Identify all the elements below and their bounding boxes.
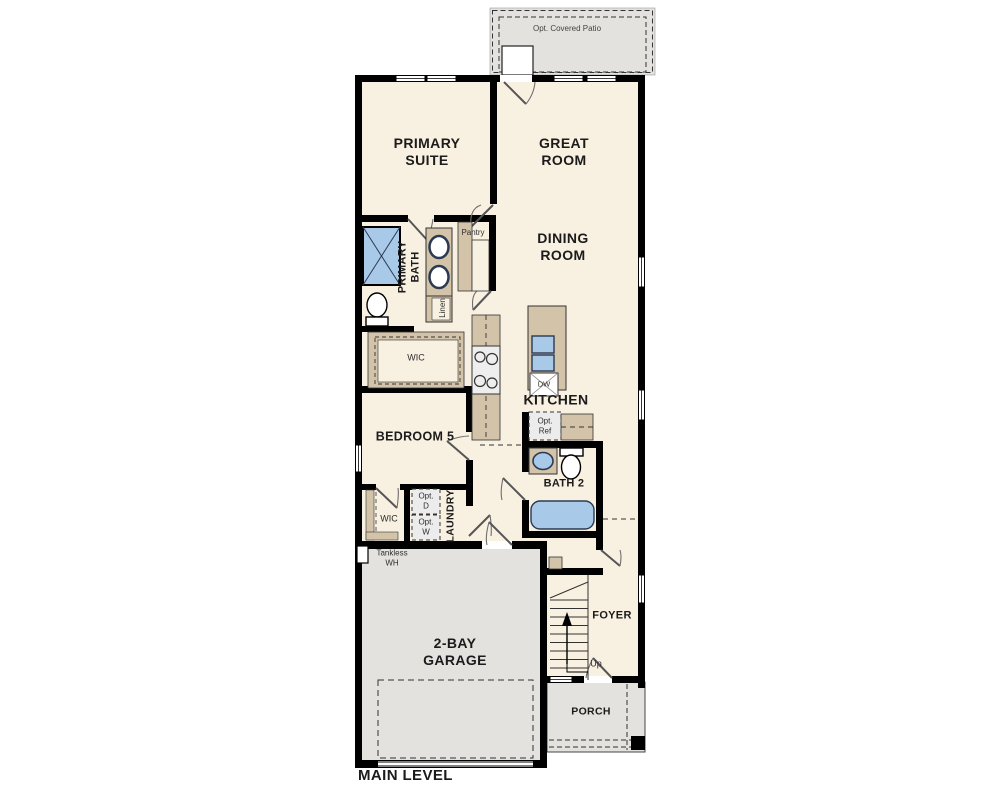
- porch-column: [631, 736, 645, 750]
- porch-label: PORCH: [571, 706, 610, 719]
- great-room-label: GREAT ROOM: [539, 135, 589, 169]
- wic-secondary-label: WIC: [380, 514, 398, 525]
- patio-notch: [502, 46, 533, 75]
- patio-label: Opt. Covered Patio: [533, 24, 601, 34]
- plan-title: MAIN LEVEL: [358, 767, 453, 785]
- wic-primary-label: WIC: [407, 353, 425, 364]
- bathtub-icon: [531, 501, 594, 529]
- opt-washer-label: Opt. W: [418, 517, 433, 537]
- tankless-wh-label: Tankless WH: [376, 548, 407, 568]
- linen-label: Linen: [438, 298, 448, 318]
- shower-icon: [363, 227, 400, 285]
- dining-room-label: DINING ROOM: [537, 230, 588, 264]
- laundry-label: LAUNDRY: [445, 489, 458, 542]
- double-vanity-icon: [426, 228, 452, 296]
- understair-closet: [549, 557, 562, 569]
- toilet-icon: [366, 293, 388, 326]
- dishwasher-label: DW: [538, 379, 551, 388]
- floorplan-canvas: Opt. Covered Patio PRIMARY SUITE GREAT R…: [0, 0, 1000, 800]
- up-label: Up: [590, 659, 602, 670]
- opt-dryer-label: Opt. D: [418, 491, 433, 511]
- bedroom5-label: BEDROOM 5: [376, 429, 454, 444]
- floorplan-drawing: [0, 0, 1000, 800]
- pantry-label: Pantry: [461, 228, 484, 238]
- range-icon: [472, 346, 500, 394]
- kitchen-counter: [472, 315, 500, 440]
- primary-suite-label: PRIMARY SUITE: [394, 135, 461, 169]
- foyer-label: FOYER: [592, 609, 631, 622]
- bath2-label: BATH 2: [544, 477, 585, 490]
- garage-label: 2-BAY GARAGE: [423, 635, 487, 669]
- opt-ref-label: Opt. Ref: [537, 416, 552, 436]
- kitchen-label: KITCHEN: [523, 391, 588, 408]
- water-heater-icon: [357, 546, 368, 563]
- primary-bath-label: PRIMARY BATH: [397, 241, 424, 293]
- sink-icon: [532, 336, 554, 371]
